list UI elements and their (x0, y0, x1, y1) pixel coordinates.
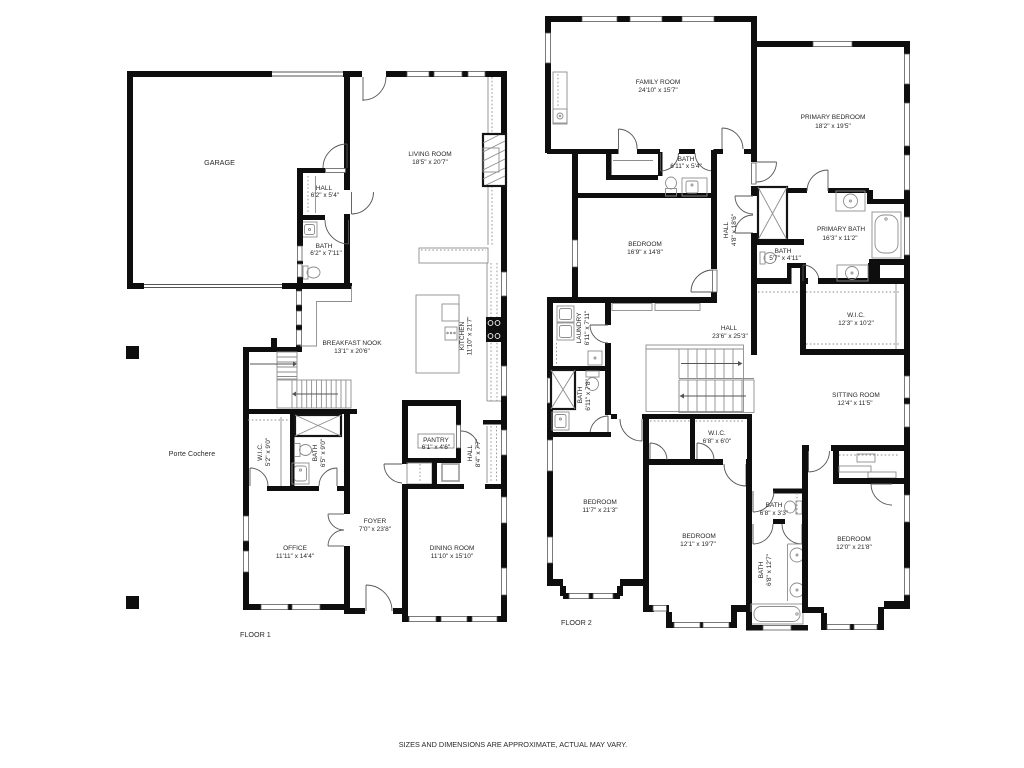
svg-text:16'9" x 14'8": 16'9" x 14'8" (627, 249, 663, 256)
svg-text:LIVING ROOM: LIVING ROOM (408, 151, 451, 158)
svg-text:11'7" x 21'3": 11'7" x 21'3" (582, 507, 618, 514)
svg-text:FOYER: FOYER (364, 518, 387, 525)
svg-text:6'5" x 9'0": 6'5" x 9'0" (320, 438, 327, 467)
svg-text:GARAGE: GARAGE (204, 158, 235, 167)
svg-text:W.I.C.: W.I.C. (847, 312, 865, 319)
svg-text:BEDROOM: BEDROOM (583, 499, 617, 506)
svg-text:6'1" x 4'6": 6'1" x 4'6" (422, 444, 451, 451)
svg-text:BATH: BATH (766, 502, 783, 509)
svg-text:11'10" x 15'10": 11'10" x 15'10" (431, 553, 474, 560)
svg-text:W.I.C.: W.I.C. (708, 430, 726, 437)
svg-text:BATH: BATH (678, 156, 695, 163)
svg-text:FLOOR 2: FLOOR 2 (561, 618, 592, 627)
svg-text:24'10" x 15'7": 24'10" x 15'7" (638, 87, 678, 94)
svg-text:HALL: HALL (316, 185, 333, 192)
svg-text:7'0" x 23'8": 7'0" x 23'8" (359, 526, 392, 533)
svg-text:12'1" x 19'7": 12'1" x 19'7" (680, 541, 716, 548)
svg-text:LAUNDRY: LAUNDRY (576, 312, 583, 344)
svg-text:HALL: HALL (467, 444, 474, 461)
svg-text:6'2" x 5'4": 6'2" x 5'4" (311, 192, 340, 199)
svg-text:FLOOR 1: FLOOR 1 (240, 630, 271, 639)
svg-text:6'8" x 6'0": 6'8" x 6'0" (703, 438, 732, 445)
svg-text:SITTING ROOM: SITTING ROOM (832, 392, 880, 399)
svg-text:BEDROOM: BEDROOM (628, 241, 662, 248)
svg-text:6'2" x 7'11": 6'2" x 7'11" (310, 250, 342, 257)
svg-text:PRIMARY BEDROOM: PRIMARY BEDROOM (801, 114, 866, 121)
svg-text:12'3" x 10'2": 12'3" x 10'2" (838, 320, 874, 327)
svg-text:5'7" x 4'11": 5'7" x 4'11" (769, 255, 801, 262)
svg-text:12'0" x 21'8": 12'0" x 21'8" (836, 544, 872, 551)
svg-text:HALL: HALL (723, 221, 730, 238)
svg-text:BREAKFAST NOOK: BREAKFAST NOOK (322, 340, 382, 347)
svg-text:12'4" x 11'5": 12'4" x 11'5" (837, 400, 873, 407)
svg-text:BEDROOM: BEDROOM (837, 536, 871, 543)
svg-text:6'8" x 3'3": 6'8" x 3'3" (760, 510, 789, 517)
svg-text:23'6" x 25'3": 23'6" x 25'3" (712, 333, 748, 340)
svg-text:BATH: BATH (758, 561, 765, 578)
svg-text:4'8" x 18'6": 4'8" x 18'6" (731, 213, 738, 246)
svg-text:6'11" x 7'11": 6'11" x 7'11" (584, 310, 591, 345)
svg-text:5'2" x 9'0": 5'2" x 9'0" (265, 437, 272, 466)
svg-text:BATH: BATH (577, 386, 584, 403)
svg-text:6'8" x 12'7": 6'8" x 12'7" (766, 553, 773, 586)
svg-text:BATH: BATH (316, 243, 333, 250)
svg-text:BEDROOM: BEDROOM (682, 533, 716, 540)
svg-text:BATH: BATH (312, 444, 319, 461)
svg-text:8'4" x 7'7": 8'4" x 7'7" (475, 438, 482, 467)
svg-text:Porte Cochere: Porte Cochere (169, 451, 215, 458)
svg-text:16'3" x 11'2": 16'3" x 11'2" (822, 235, 858, 242)
svg-text:13'1" x 20'6": 13'1" x 20'6" (334, 348, 370, 355)
svg-text:11'11" x 14'4": 11'11" x 14'4" (276, 553, 315, 560)
svg-text:KITCHEN: KITCHEN (459, 321, 466, 350)
svg-text:FAMILY ROOM: FAMILY ROOM (636, 79, 681, 86)
svg-text:BATH: BATH (775, 248, 792, 255)
svg-text:PRIMARY BATH: PRIMARY BATH (817, 226, 865, 233)
svg-text:HALL: HALL (721, 325, 738, 332)
svg-text:W.I.C.: W.I.C. (257, 443, 264, 461)
svg-text:SIZES AND DIMENSIONS ARE APPRO: SIZES AND DIMENSIONS ARE APPROXIMATE, AC… (399, 740, 627, 749)
svg-text:PANTRY: PANTRY (423, 437, 449, 444)
svg-text:18'5" x 20'7": 18'5" x 20'7" (412, 159, 448, 166)
svg-text:OFFICE: OFFICE (283, 545, 307, 552)
svg-text:18'2" x 19'5": 18'2" x 19'5" (815, 123, 851, 130)
svg-text:DINING ROOM: DINING ROOM (430, 545, 475, 552)
svg-text:6'11" x 7'8": 6'11" x 7'8" (585, 379, 592, 411)
svg-text:11'10" x 21'7": 11'10" x 21'7" (467, 316, 474, 355)
svg-text:6'11" x 5'4": 6'11" x 5'4" (670, 163, 702, 170)
